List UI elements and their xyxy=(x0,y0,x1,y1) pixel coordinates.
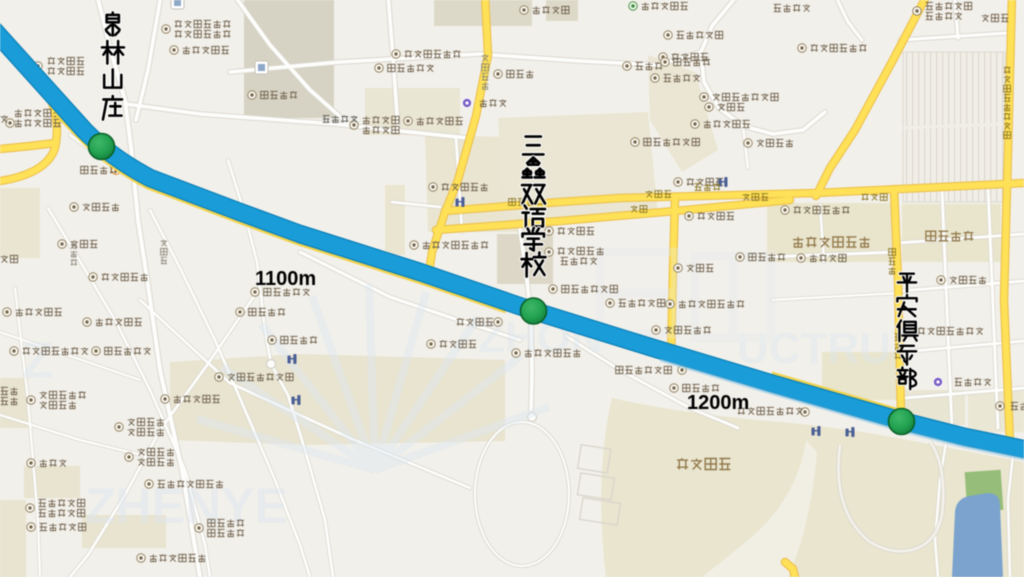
svg-text:1200m: 1200m xyxy=(687,392,749,414)
svg-text:Z: Z xyxy=(22,332,54,390)
svg-text:ZHENYE: ZHENYE xyxy=(85,478,288,534)
svg-text:1100m: 1100m xyxy=(255,268,316,290)
svg-text:UCTRU: UCTRU xyxy=(737,324,891,373)
